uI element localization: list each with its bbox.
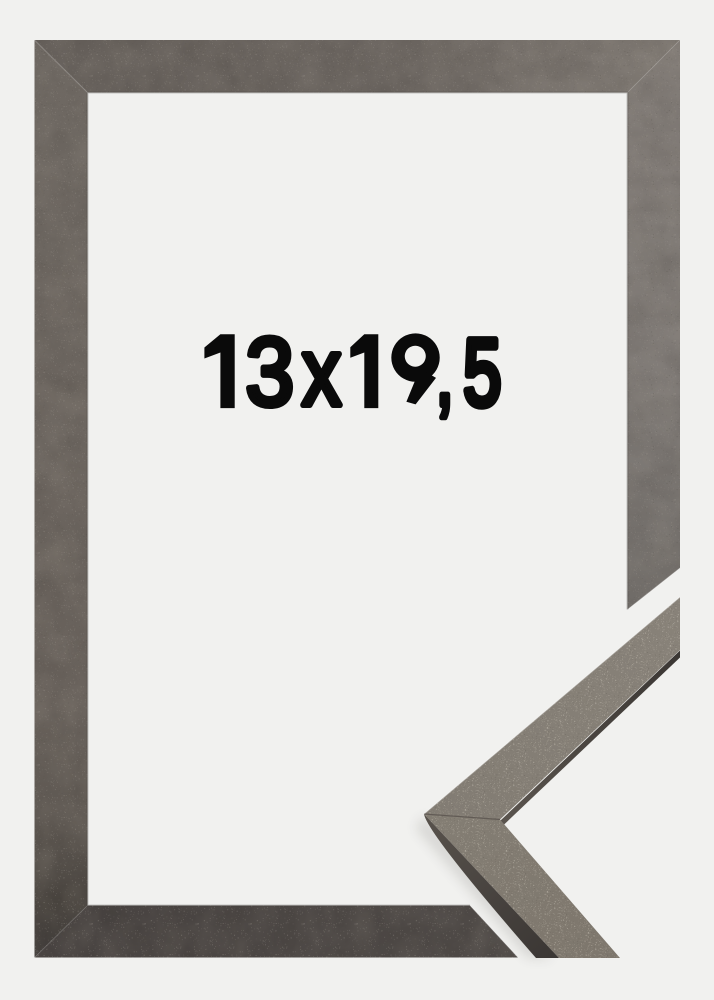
- svg-text:3: 3: [245, 317, 294, 426]
- svg-text:,: ,: [435, 318, 454, 426]
- svg-text:x: x: [302, 317, 341, 426]
- svg-text:5: 5: [463, 319, 501, 425]
